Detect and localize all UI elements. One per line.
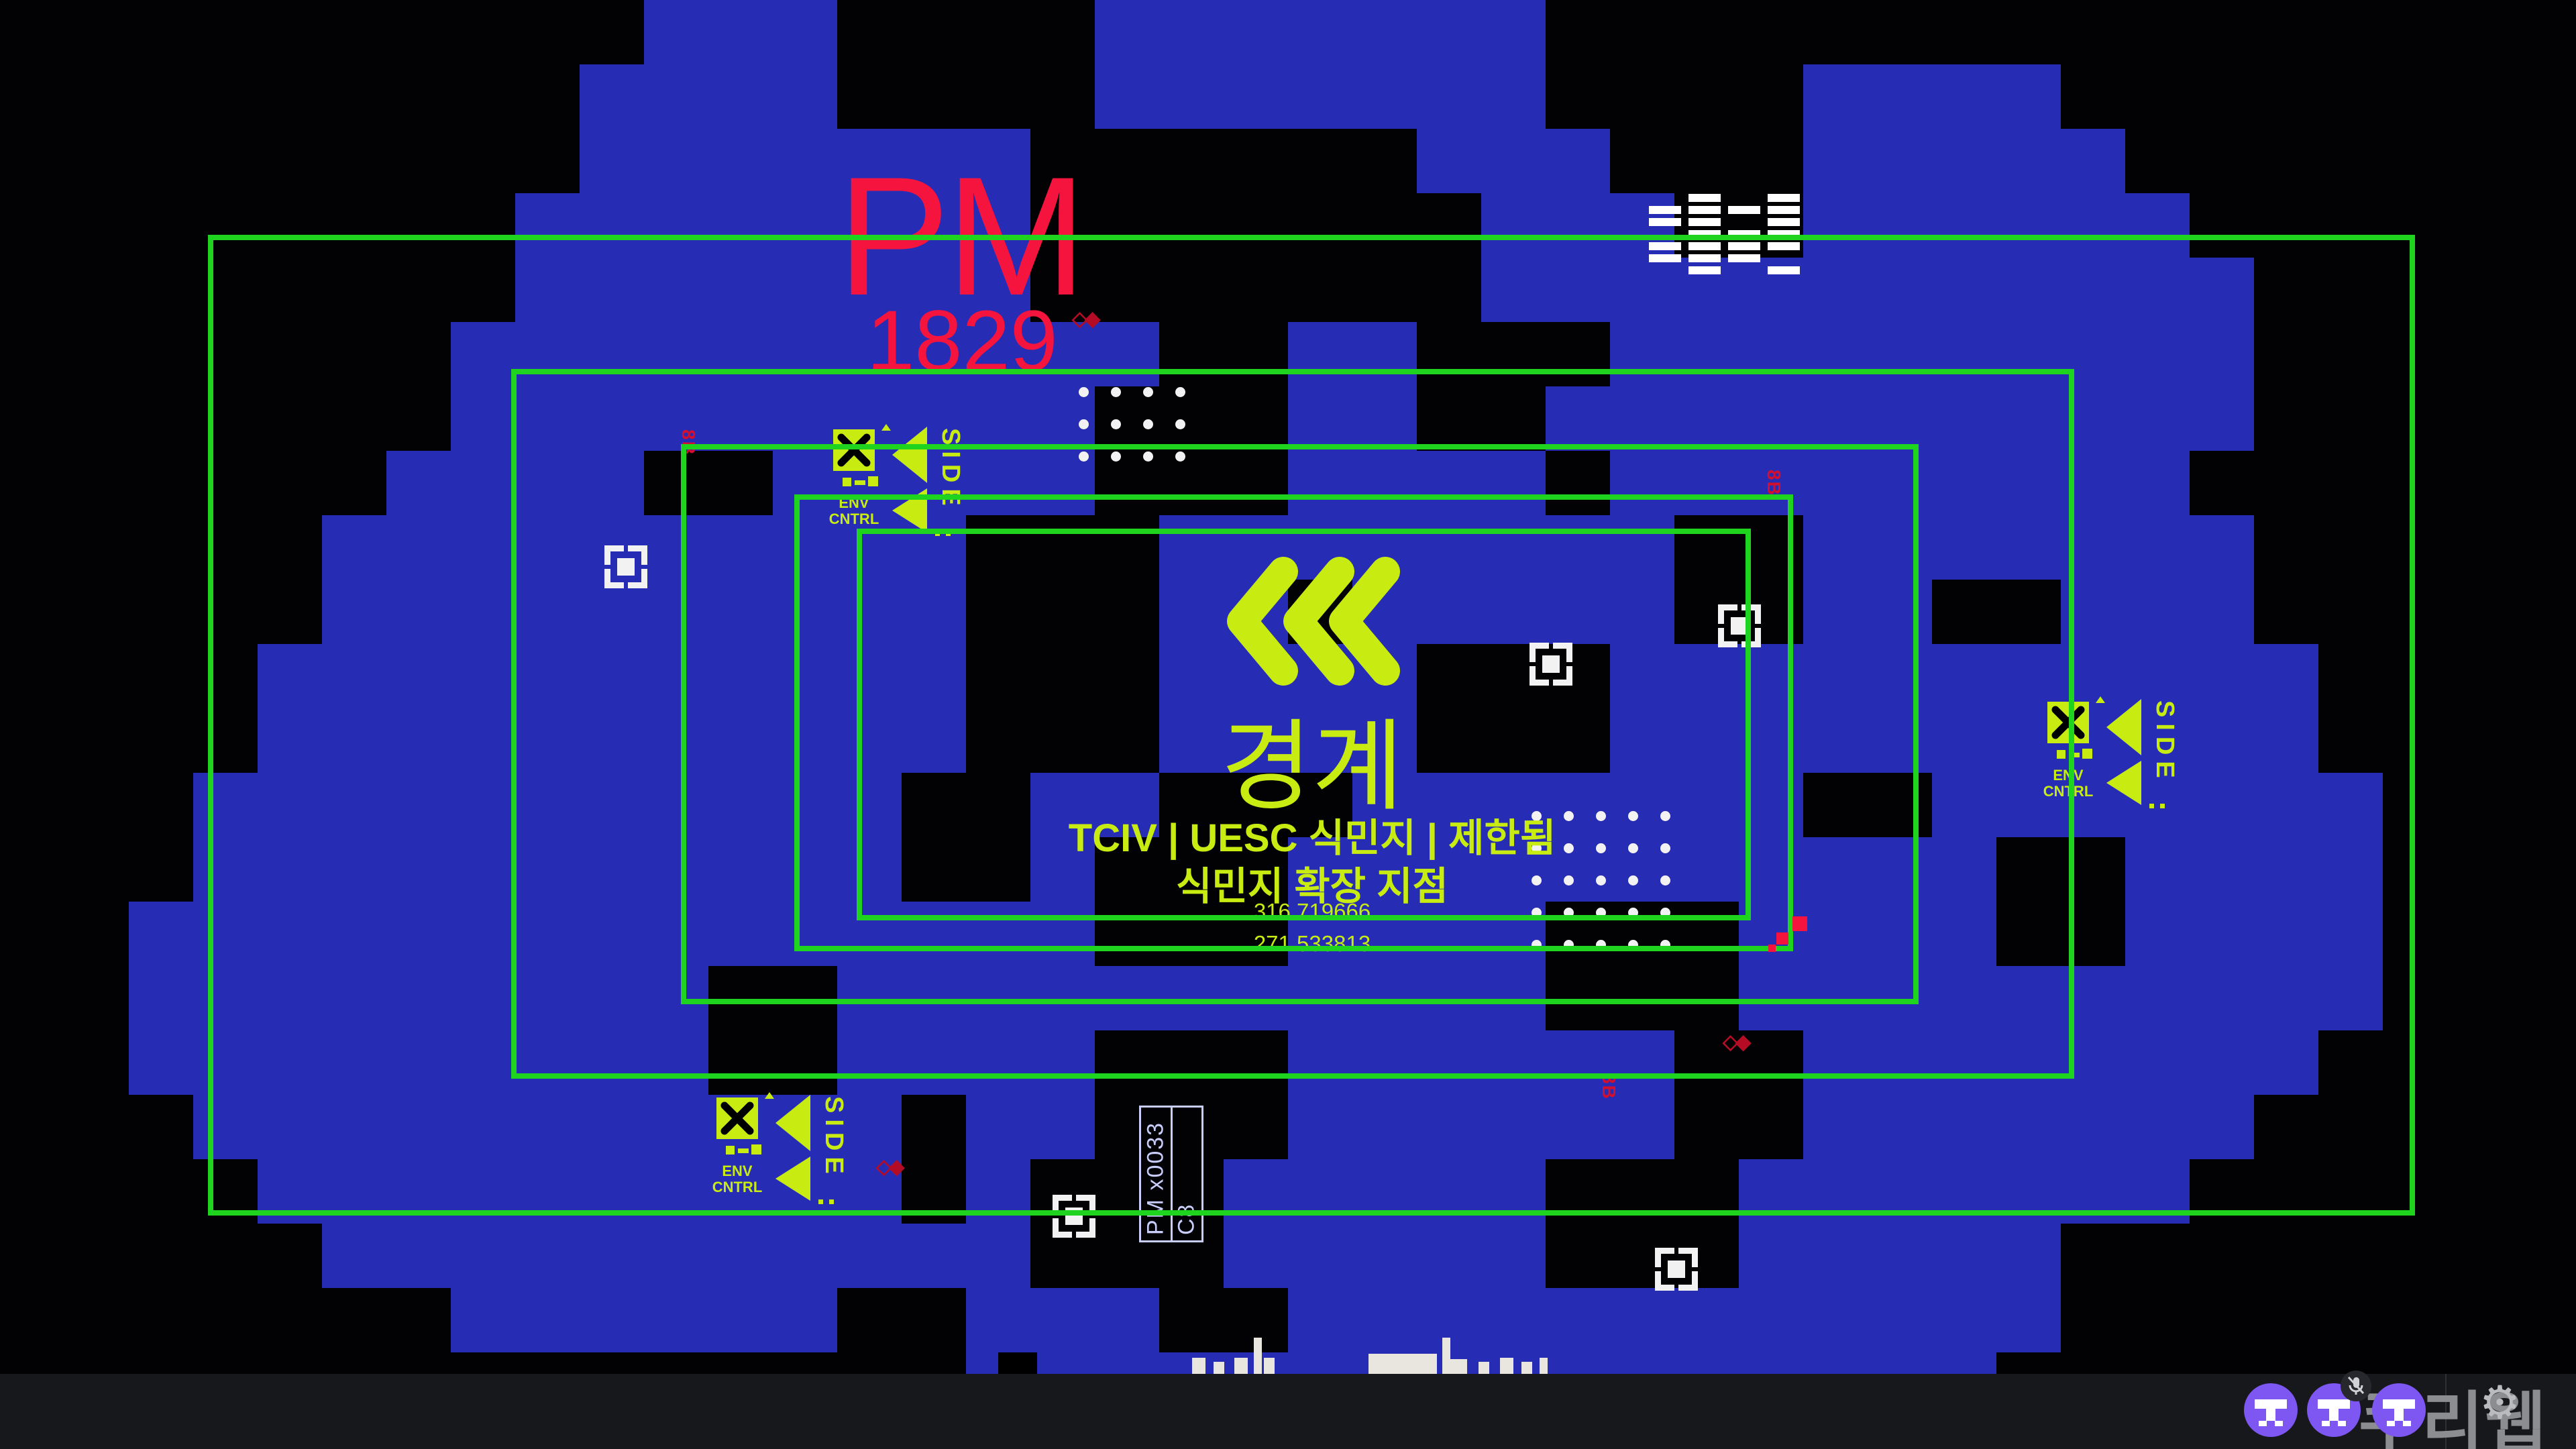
avatar-logo-pixel <box>2329 1409 2339 1421</box>
landmass-segment <box>451 1288 837 1352</box>
anomaly-pixel <box>1792 916 1807 931</box>
signal-dash <box>1688 218 1721 226</box>
signal-dash <box>1768 218 1800 226</box>
landmass-segment <box>1417 129 1610 193</box>
terrain-tick <box>1192 1358 1205 1374</box>
avatar-logo-pixel <box>2255 1399 2287 1409</box>
signal-dash <box>1728 206 1760 214</box>
avatar-logo-pixel <box>2403 1421 2411 1426</box>
signal-dash <box>1768 206 1800 214</box>
landmass-segment <box>1288 1288 2061 1352</box>
scan-frame-5 <box>857 529 1751 920</box>
terrain-tick <box>1521 1362 1532 1374</box>
avatar-logo-pixel <box>2259 1421 2267 1426</box>
landmass-segment <box>322 1224 1030 1288</box>
landmass-notch <box>998 1352 1037 1374</box>
gear-icon: ⚙ <box>2479 1377 2520 1430</box>
terrain-tick <box>1254 1338 1262 1374</box>
landmass-segment <box>1224 1224 1546 1288</box>
landmass-segment <box>1095 0 1546 64</box>
avatar-logo-pixel <box>2394 1409 2404 1421</box>
streamer-avatar[interactable] <box>2372 1383 2426 1437</box>
terrain-tick <box>1264 1358 1275 1374</box>
signal-dash <box>1649 206 1681 214</box>
avatar-logo-pixel <box>2275 1421 2283 1426</box>
bottom-letterbox-strip <box>0 1374 2576 1449</box>
target-bracket-icon <box>1655 1248 1698 1291</box>
mic-muted-badge <box>2341 1371 2371 1401</box>
landmass-segment <box>580 64 837 129</box>
landmass-segment <box>1095 64 1546 129</box>
signal-dash <box>1649 218 1681 226</box>
terrain-tick <box>1540 1358 1548 1374</box>
landmass-segment <box>1803 129 2125 193</box>
avatar-logo-pixel <box>2266 1409 2275 1421</box>
terrain-tick <box>1234 1358 1248 1374</box>
signal-dash <box>1768 194 1800 202</box>
terrain-tick <box>1500 1358 1513 1374</box>
anomaly-pixel <box>1776 932 1788 945</box>
signal-dash <box>1688 206 1721 214</box>
terrain-tick <box>1443 1359 1467 1374</box>
landmass-segment <box>966 1288 1159 1352</box>
avatar-logo-pixel <box>2383 1399 2415 1409</box>
avatar-logo-pixel <box>2338 1421 2346 1426</box>
signal-dash <box>1688 194 1721 202</box>
avatar-logo-pixel <box>2387 1421 2395 1426</box>
landmass-segment <box>1739 1224 2061 1288</box>
avatar-logo-pixel <box>2322 1421 2330 1426</box>
terrain-tick <box>1479 1362 1489 1374</box>
terrain-tick <box>1214 1362 1224 1374</box>
streamer-avatar[interactable] <box>2244 1383 2298 1437</box>
game-viewport: 8B8B8B◇◆◇◆◇◆ENVCNTRLSIDEENVCNTRLSIDEENVC… <box>0 0 2576 1449</box>
terrain-tick <box>1368 1354 1437 1374</box>
landmass-segment <box>644 0 837 64</box>
anomaly-pixel <box>1768 945 1776 952</box>
bracket-center-square <box>1668 1260 1685 1278</box>
landmass-segment <box>1803 64 2061 129</box>
